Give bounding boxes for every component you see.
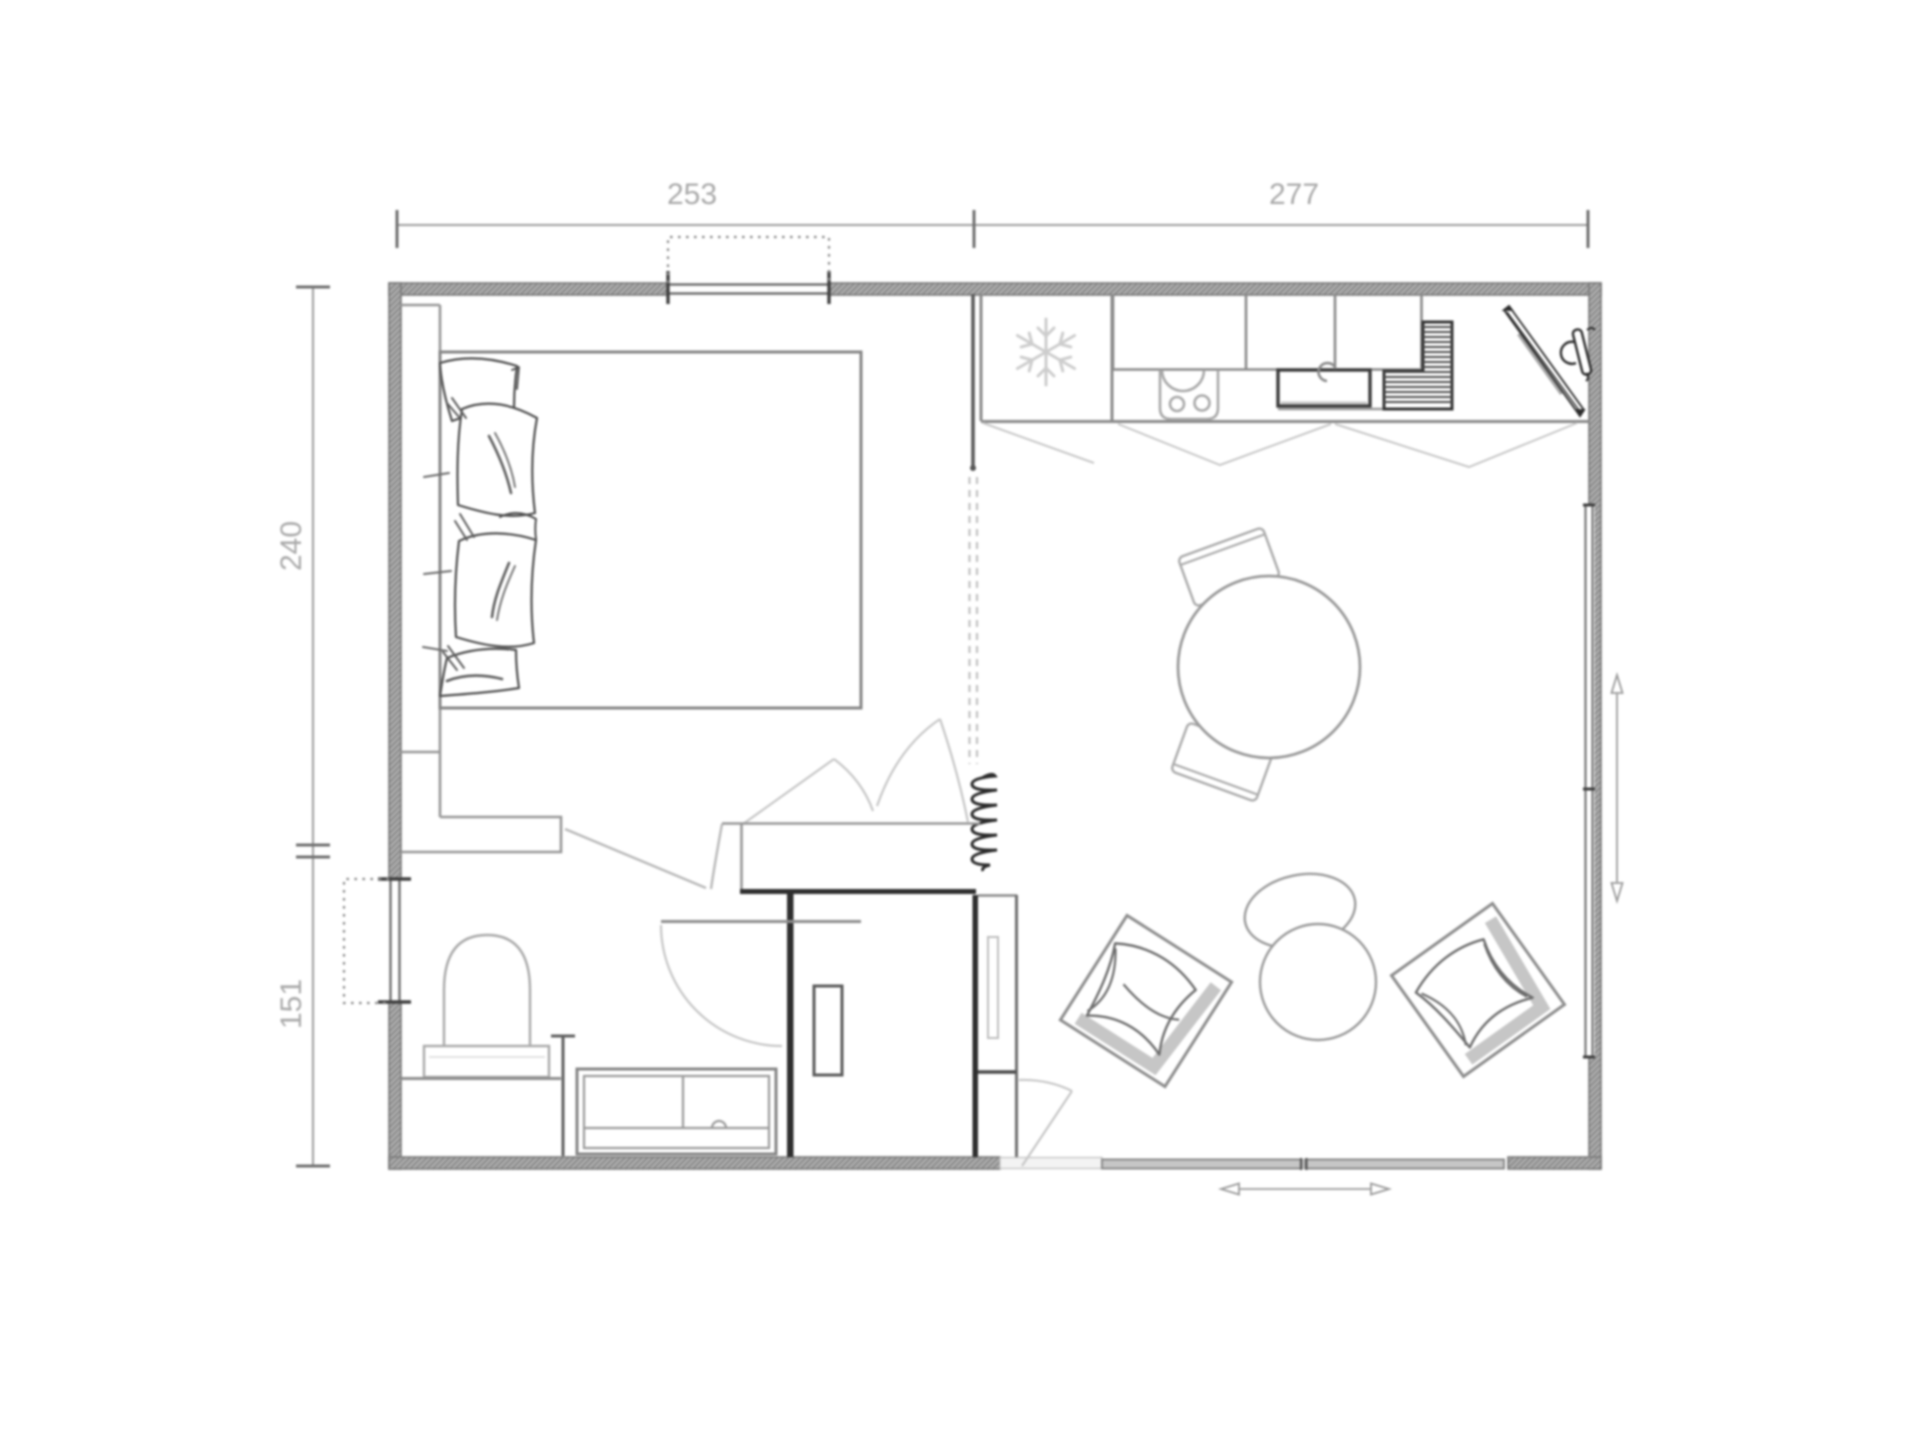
svg-text:277: 277 bbox=[1269, 178, 1319, 211]
svg-text:253: 253 bbox=[667, 178, 717, 211]
svg-text:240: 240 bbox=[275, 521, 308, 571]
svg-text:151: 151 bbox=[275, 979, 308, 1029]
